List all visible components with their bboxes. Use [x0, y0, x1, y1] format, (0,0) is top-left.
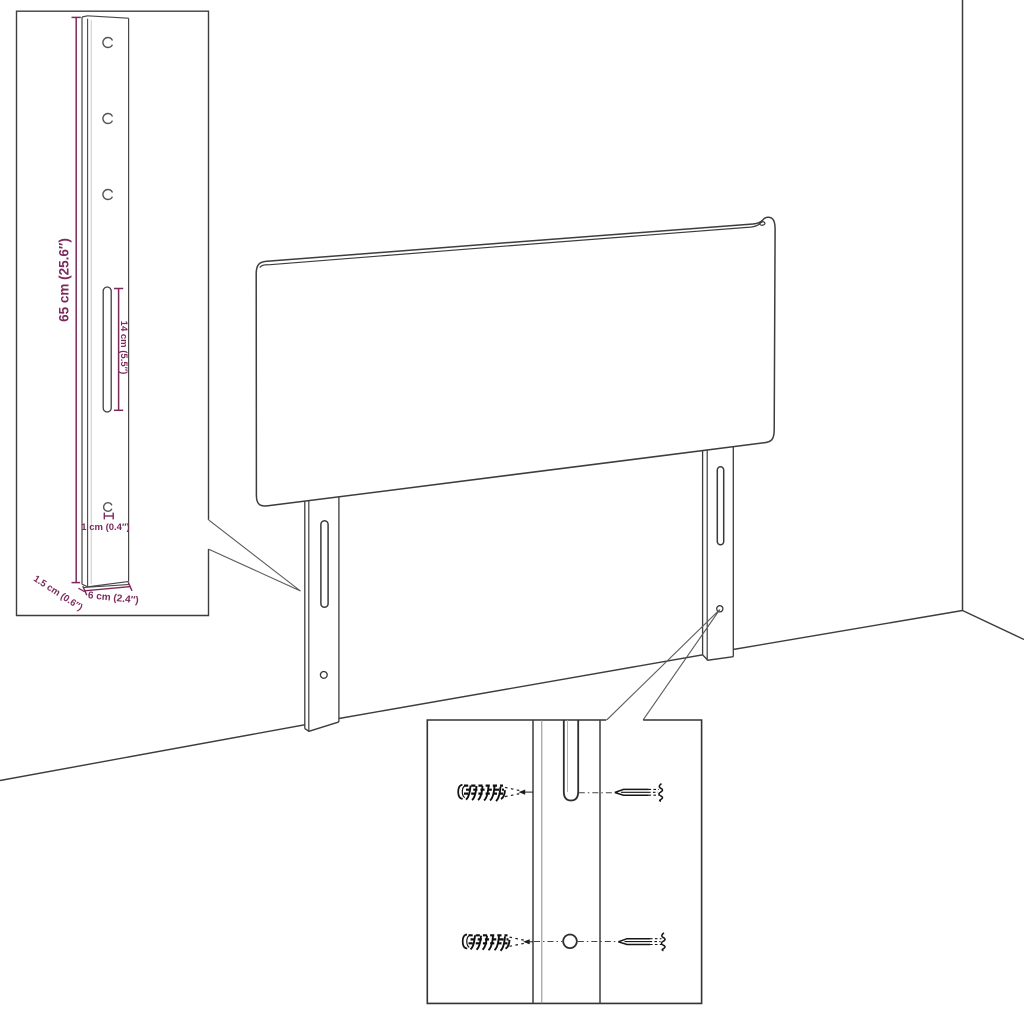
svg-text:14 cm (5.5″): 14 cm (5.5″): [118, 321, 129, 375]
svg-text:65 cm (25.6″): 65 cm (25.6″): [56, 238, 71, 322]
svg-text:1 cm (0.4″): 1 cm (0.4″): [81, 522, 129, 533]
